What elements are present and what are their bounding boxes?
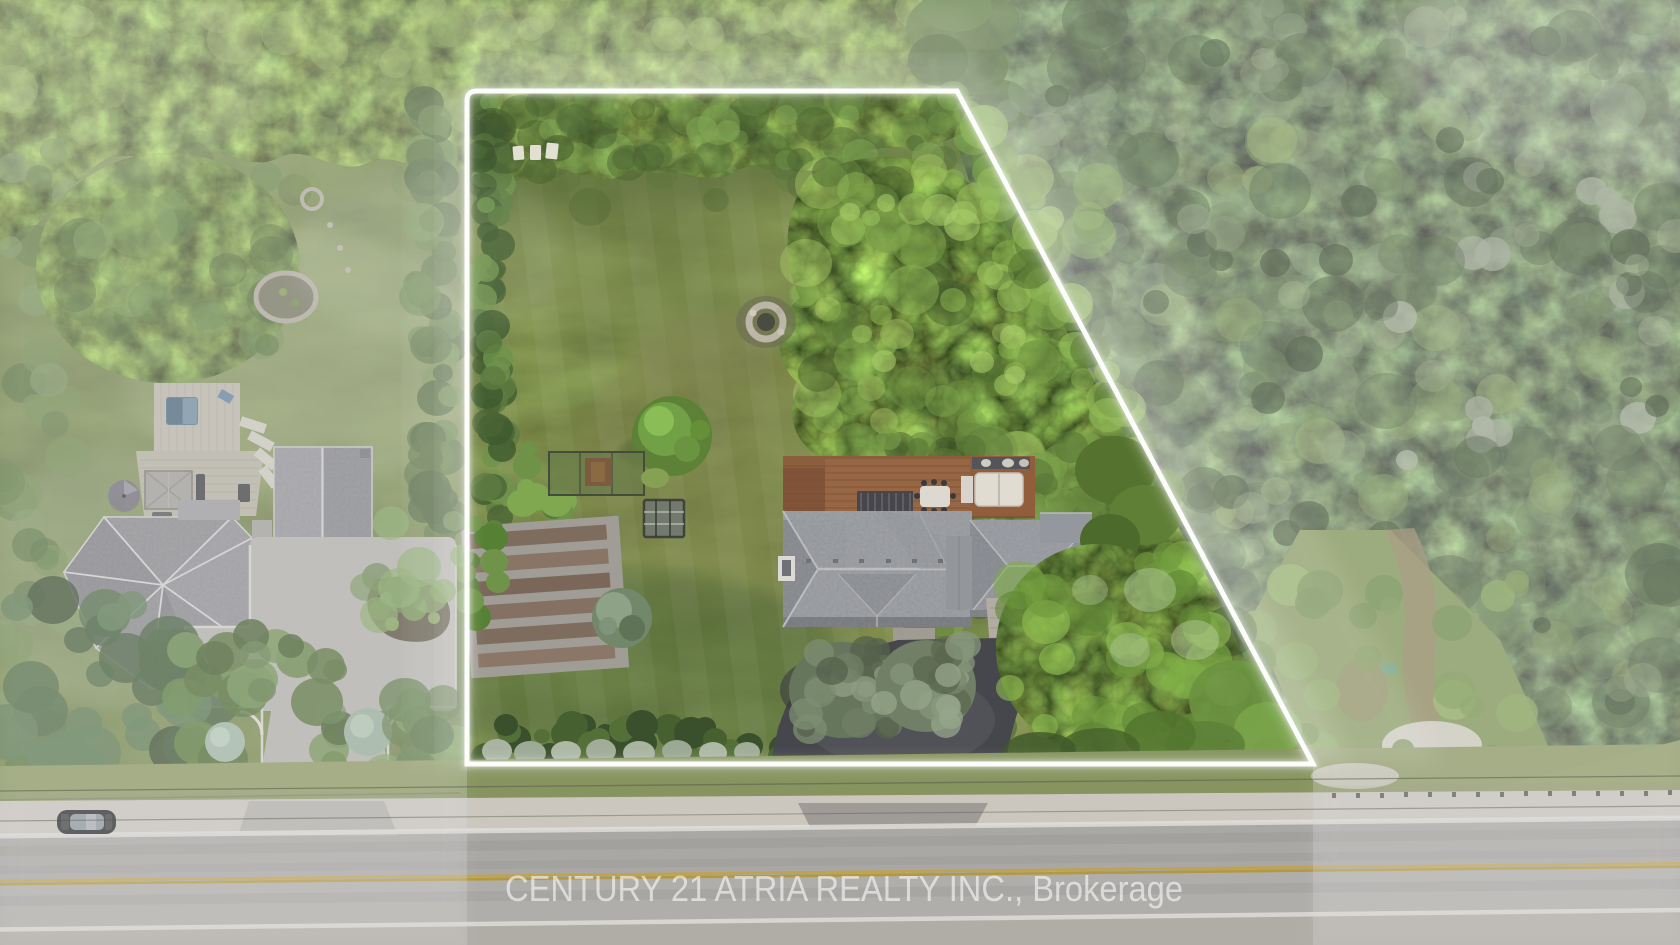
svg-text:CENTURY 21 ATRIA REALTY INC.,: CENTURY 21 ATRIA REALTY INC., Brokerage: [505, 868, 1183, 909]
